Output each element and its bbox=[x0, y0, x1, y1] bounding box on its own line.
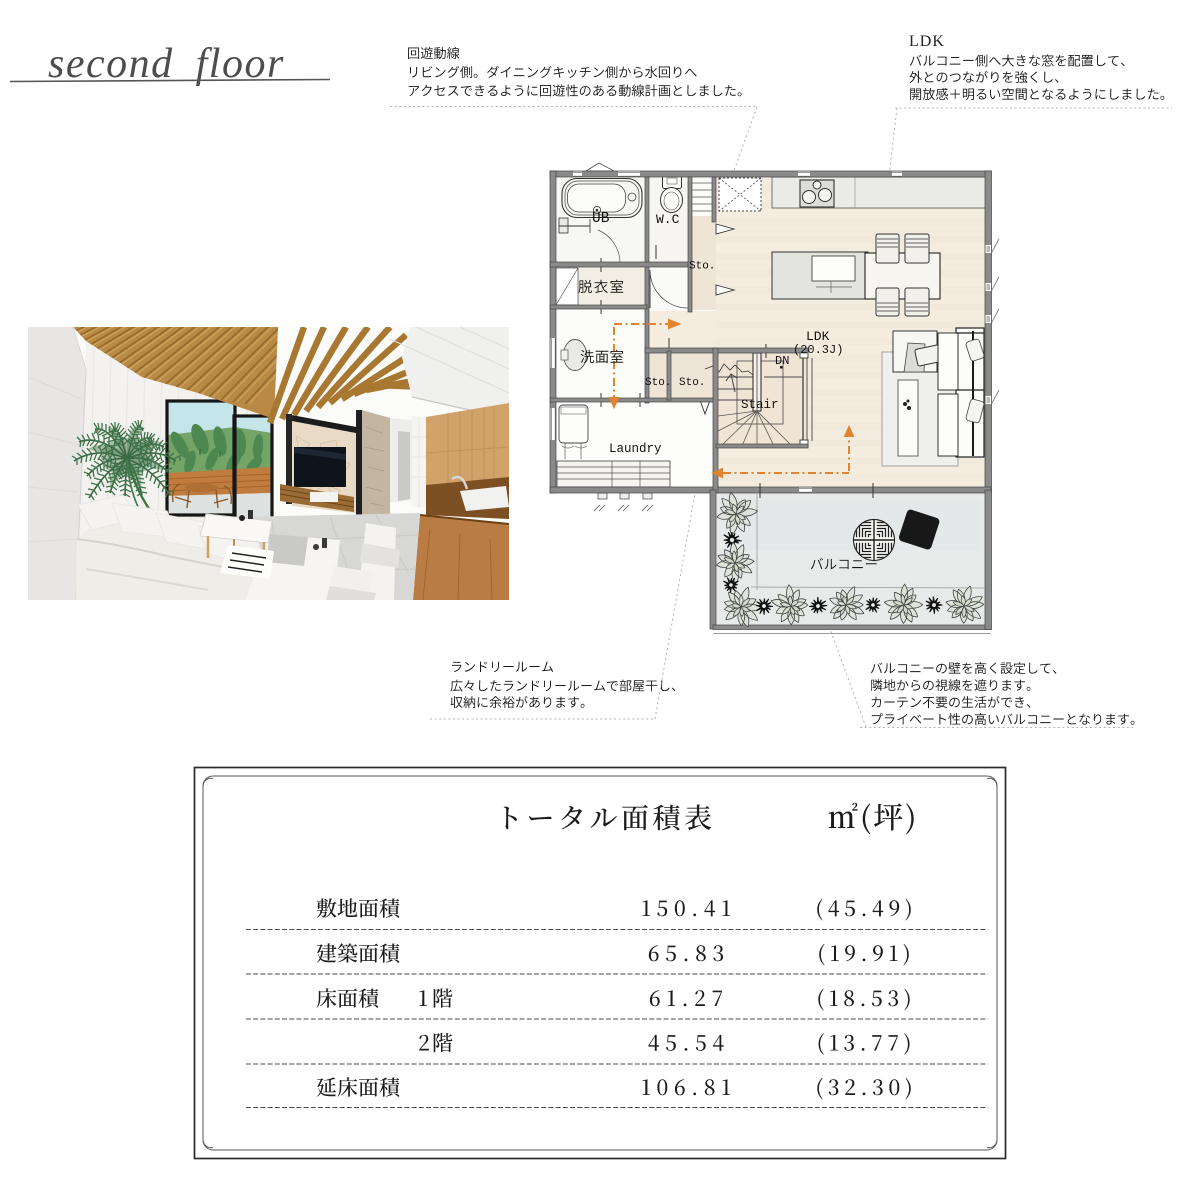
svg-text:Laundry: Laundry bbox=[609, 442, 662, 456]
svg-text:Stair: Stair bbox=[741, 398, 779, 412]
svg-text:LDK: LDK bbox=[806, 329, 830, 344]
svg-text:LDK: LDK bbox=[909, 33, 945, 50]
svg-text:Sto.: Sto. bbox=[689, 261, 715, 273]
svg-text:(20.3J): (20.3J) bbox=[793, 343, 843, 357]
svg-text:UB: UB bbox=[592, 211, 610, 227]
svg-text:DN: DN bbox=[775, 354, 789, 368]
svg-text:Sto.: Sto. bbox=[645, 377, 671, 389]
svg-text:Sto.: Sto. bbox=[679, 377, 705, 389]
svg-text:W.C: W.C bbox=[656, 212, 680, 227]
